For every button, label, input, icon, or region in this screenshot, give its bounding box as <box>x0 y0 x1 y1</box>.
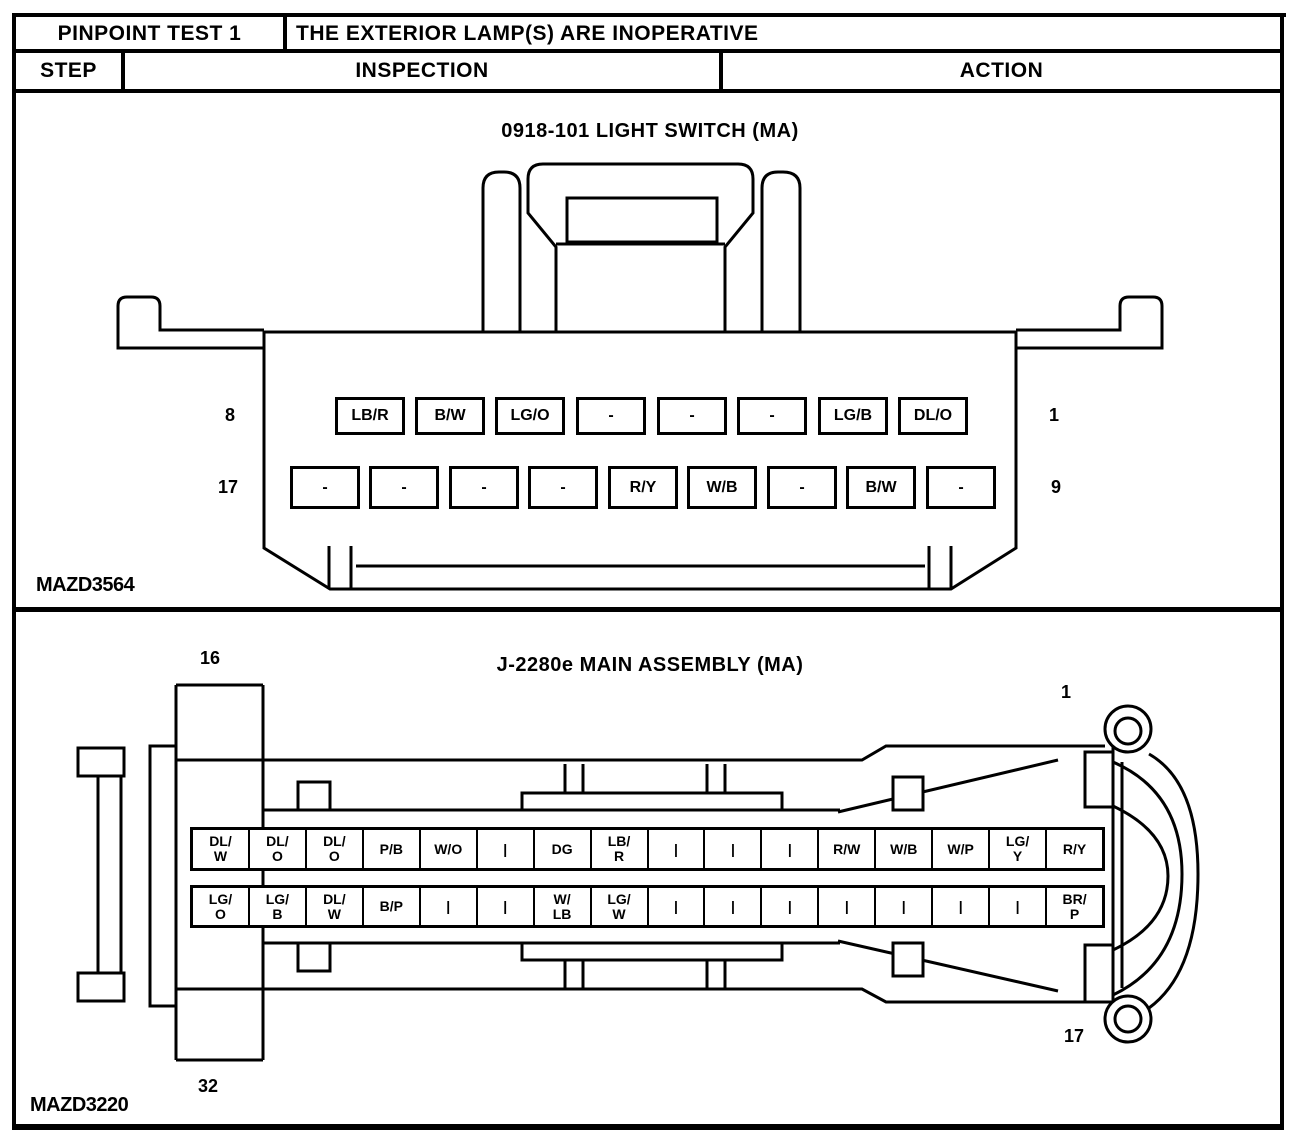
service-manual-page: PINPOINT TEST 1 THE EXTERIOR LAMP(S) ARE… <box>0 0 1312 1136</box>
pin-cell: | <box>933 888 990 925</box>
main-assembly-pin-row-top: DL/ W DL/ O DL/ O P/B W/O | DG LB/ R | |… <box>190 827 1105 871</box>
pin-cell: W/O <box>421 830 478 868</box>
pin-cell: | <box>705 830 762 868</box>
pin-cell: | <box>649 888 706 925</box>
pin-cell: DL/ O <box>250 830 307 868</box>
pin-cell: W/ LB <box>535 888 592 925</box>
pin-cell: | <box>478 830 535 868</box>
pin-cell: | <box>990 888 1047 925</box>
pin-cell: | <box>421 888 478 925</box>
pin-cell: BR/ P <box>1047 888 1102 925</box>
pin-cell: | <box>649 830 706 868</box>
pin-number-32: 32 <box>190 1076 226 1097</box>
pin-number-17: 17 <box>1056 1026 1092 1047</box>
pin-cell: LG/ Y <box>990 830 1047 868</box>
main-assembly-pin-row-bottom: LG/ O LG/ B DL/ W B/P | | W/ LB LG/ W | … <box>190 885 1105 928</box>
pin-cell: LB/ R <box>592 830 649 868</box>
pin-cell: P/B <box>364 830 421 868</box>
figure-id-mazd3220: MAZD3220 <box>30 1094 128 1117</box>
pin-cell: R/W <box>819 830 876 868</box>
pin-cell: DL/ O <box>307 830 364 868</box>
pin-number-16: 16 <box>192 648 228 669</box>
pin-number-1: 1 <box>1048 682 1084 703</box>
pin-cell: | <box>819 888 876 925</box>
pin-cell: B/P <box>364 888 421 925</box>
pin-cell: LG/ O <box>193 888 250 925</box>
pin-cell: LG/ B <box>250 888 307 925</box>
main-assembly-connector-drawing <box>0 0 1312 1136</box>
pin-cell: DL/ W <box>193 830 250 868</box>
pin-cell: LG/ W <box>592 888 649 925</box>
pin-cell: W/P <box>933 830 990 868</box>
pin-cell: DL/ W <box>307 888 364 925</box>
pin-cell: | <box>762 830 819 868</box>
pin-cell: R/Y <box>1047 830 1102 868</box>
pin-cell: | <box>876 888 933 925</box>
pin-cell: W/B <box>876 830 933 868</box>
pin-cell: | <box>705 888 762 925</box>
pin-cell: | <box>762 888 819 925</box>
pin-cell: | <box>478 888 535 925</box>
pin-cell: DG <box>535 830 592 868</box>
